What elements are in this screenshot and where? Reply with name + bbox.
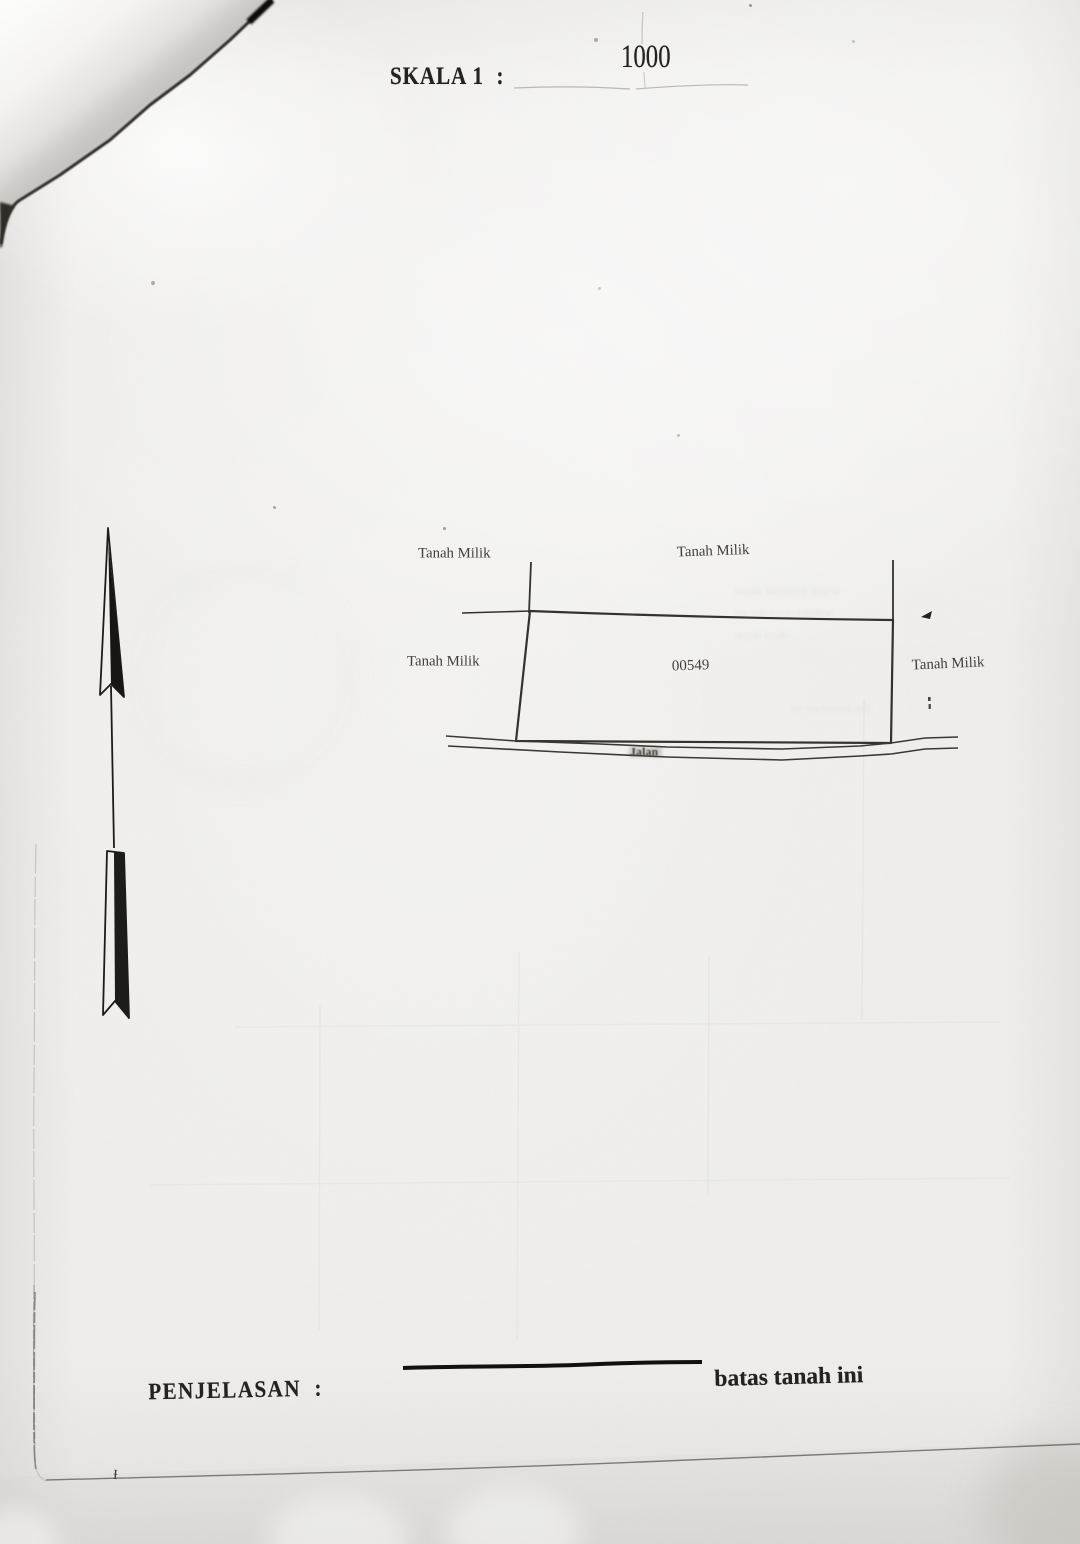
svg-text:Tanah Milik: Tanah Milik bbox=[418, 546, 491, 562]
svg-text:Jalan: Jalan bbox=[630, 747, 659, 759]
svg-text:00549: 00549 bbox=[672, 657, 710, 674]
svg-text:Tanah Milik: Tanah Milik bbox=[407, 654, 480, 670]
svg-text:Tanah Milik: Tanah Milik bbox=[677, 542, 751, 561]
svg-text:Tanah Milik: Tanah Milik bbox=[911, 654, 985, 673]
